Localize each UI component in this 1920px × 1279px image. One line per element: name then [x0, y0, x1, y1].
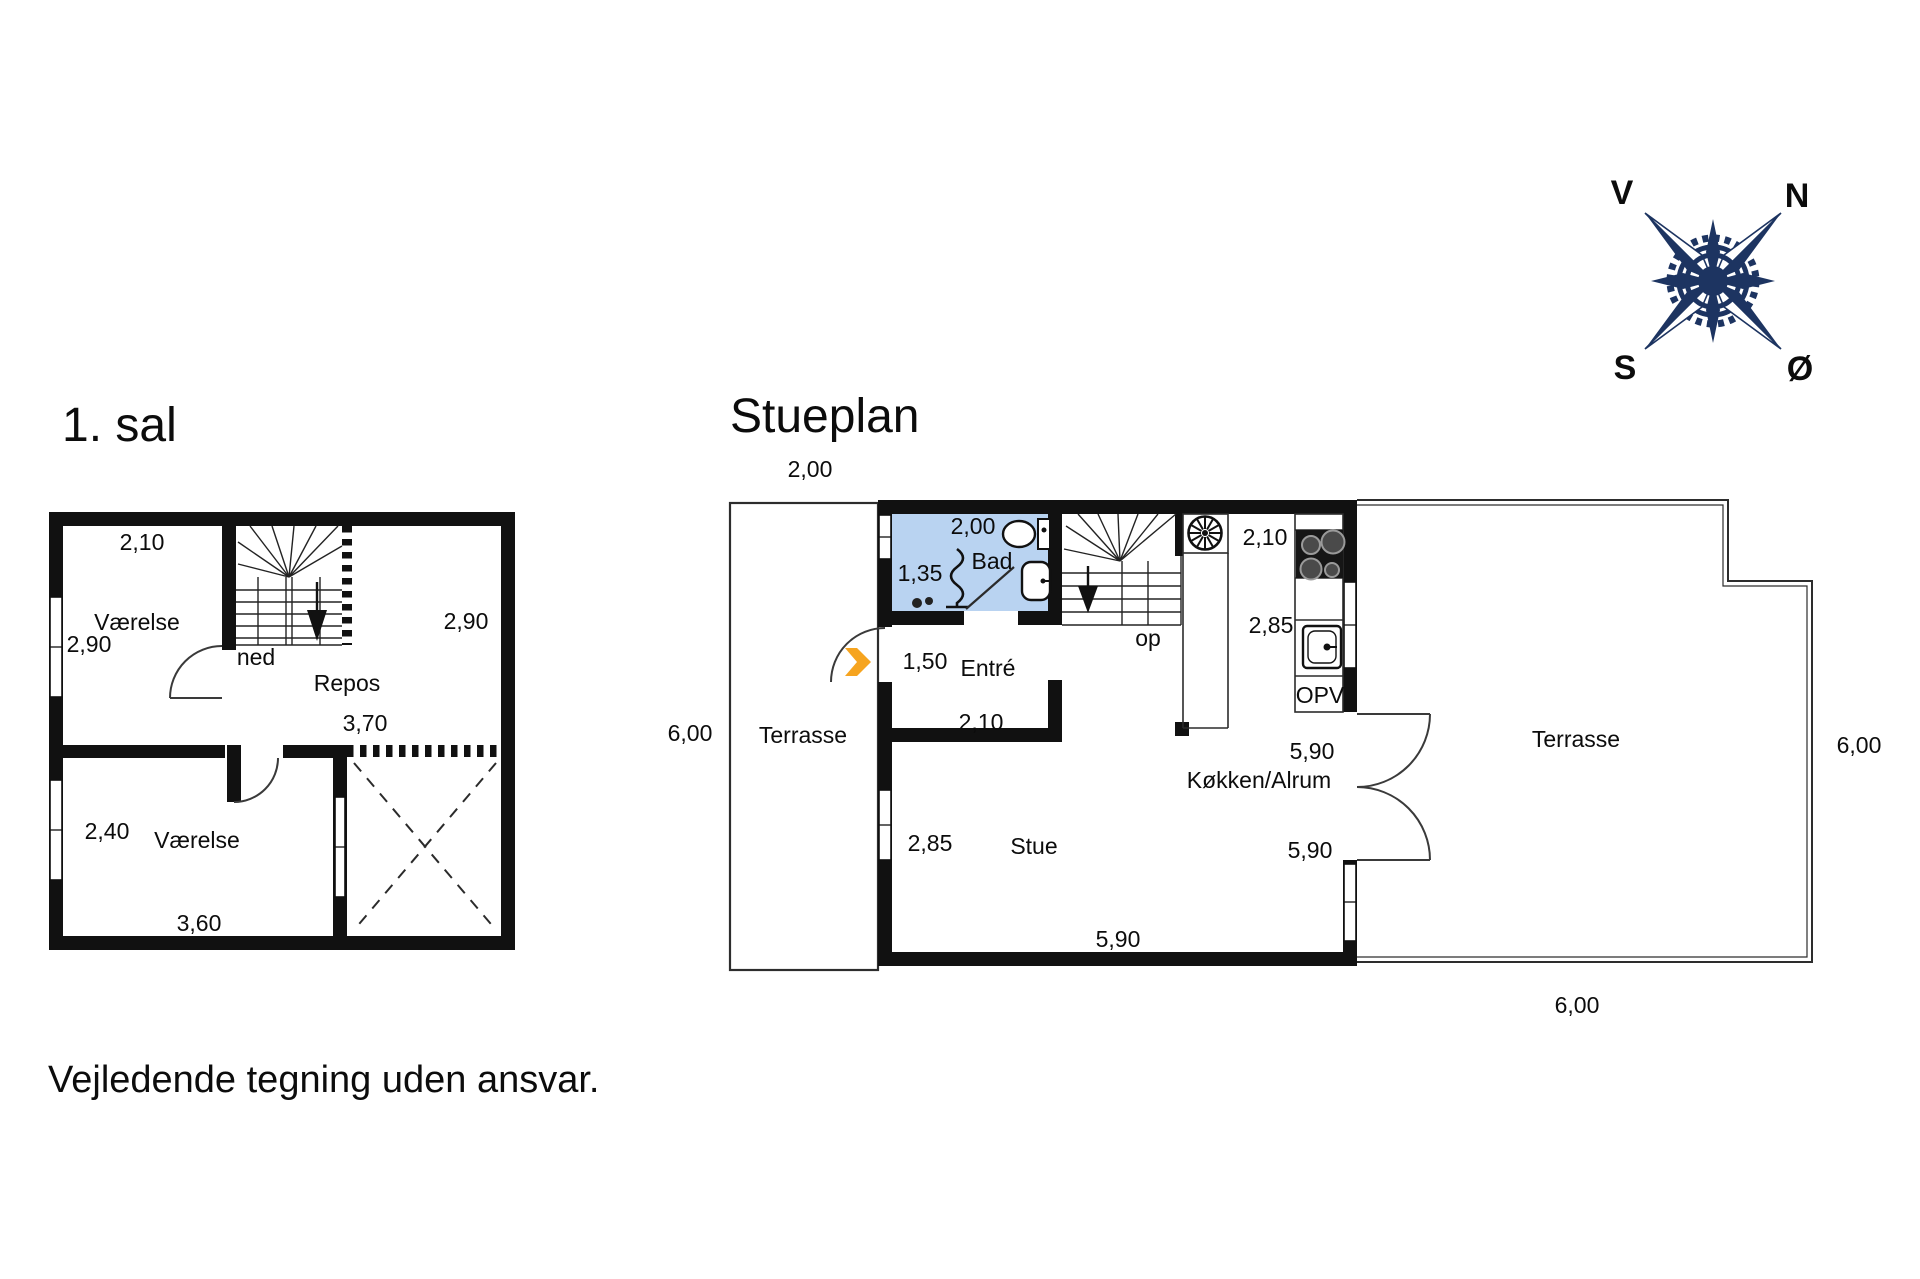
dimension-label: 6,00 — [1837, 732, 1882, 758]
ground-floor-plan: Stueplan — [668, 390, 1882, 1018]
drain-icon — [912, 598, 922, 608]
floor-plan-drawing: 1. sal — [0, 0, 1920, 1279]
first-floor-plan: 1. sal — [49, 399, 515, 950]
dimension-label: 3,60 — [177, 910, 222, 936]
dimension-label: 2,90 — [444, 608, 489, 634]
drain-icon — [925, 597, 933, 605]
dimension-label: 6,00 — [1555, 992, 1600, 1018]
disclaimer-text: Vejledende tegning uden ansvar. — [48, 1059, 599, 1101]
knee-wall-vertical — [342, 526, 352, 645]
dimension-label: 2,85 — [1249, 612, 1294, 638]
toilet-icon — [1003, 519, 1050, 549]
dimension-label: 2,10 — [959, 709, 1004, 735]
knee-wall-horizontal — [347, 745, 501, 757]
room-label: Bad — [972, 548, 1013, 574]
room-label: Repos — [314, 670, 380, 696]
kitchen-sink-icon — [1303, 626, 1341, 668]
dimension-label: 2,00 — [788, 456, 833, 482]
stove-icon — [1296, 530, 1345, 580]
stair-direction-label: op — [1135, 625, 1161, 651]
compass-south-label: S — [1614, 349, 1637, 387]
dimension-label: 2,90 — [67, 631, 112, 657]
bath-sink-icon — [1022, 562, 1050, 600]
room-label: Terrasse — [1532, 726, 1620, 752]
dimension-label: 5,90 — [1290, 738, 1335, 764]
compass-rose-icon: V N S Ø — [1611, 174, 1814, 388]
room-label: Køkken/Alrum — [1187, 767, 1331, 793]
dimension-label: 5,90 — [1288, 837, 1333, 863]
dimension-label: 3,70 — [343, 710, 388, 736]
dimension-label: 2,85 — [908, 830, 953, 856]
floor-plan-page: 1. sal — [0, 0, 1920, 1279]
dimension-label: 1,35 — [898, 560, 943, 586]
dimension-label: 6,00 — [668, 720, 713, 746]
dimension-label: 2,00 — [951, 513, 996, 539]
compass-west-label: V — [1611, 174, 1634, 212]
dimension-label: 2,10 — [120, 529, 165, 555]
extractor-fan-icon — [1189, 517, 1222, 550]
dimension-label: 1,50 — [903, 648, 948, 674]
stair-direction-label: ned — [237, 644, 275, 670]
room-label: Terrasse — [759, 722, 847, 748]
room-label: Værelse — [154, 827, 240, 853]
compass-east-label: Ø — [1787, 350, 1813, 388]
ground-floor-title: Stueplan — [730, 390, 920, 443]
dimension-label: 2,10 — [1243, 524, 1288, 550]
appliance-label: OPV — [1296, 682, 1345, 708]
room-label: Stue — [1010, 833, 1057, 859]
first-floor-interior — [63, 526, 501, 936]
first-floor-title: 1. sal — [62, 399, 177, 452]
compass-north-label: N — [1785, 177, 1810, 215]
room-label: Entré — [961, 655, 1016, 681]
dimension-label: 2,40 — [85, 818, 130, 844]
dimension-label: 5,90 — [1096, 926, 1141, 952]
